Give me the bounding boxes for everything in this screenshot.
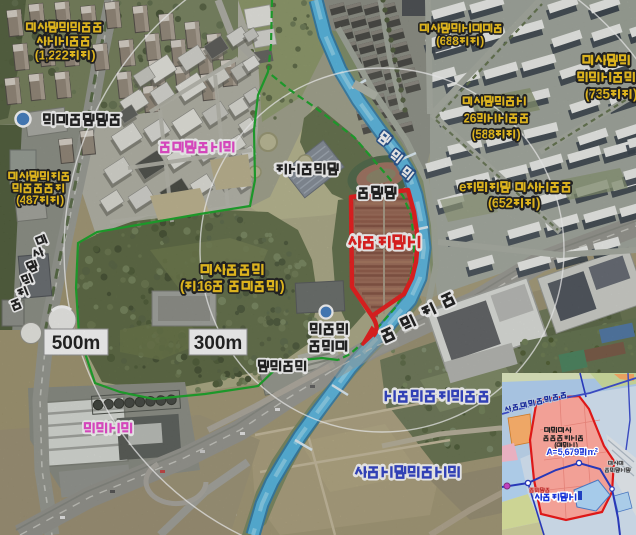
svg-text:A=5,679: A=5,679	[546, 447, 579, 458]
svg-text:m²: m²	[588, 447, 598, 458]
